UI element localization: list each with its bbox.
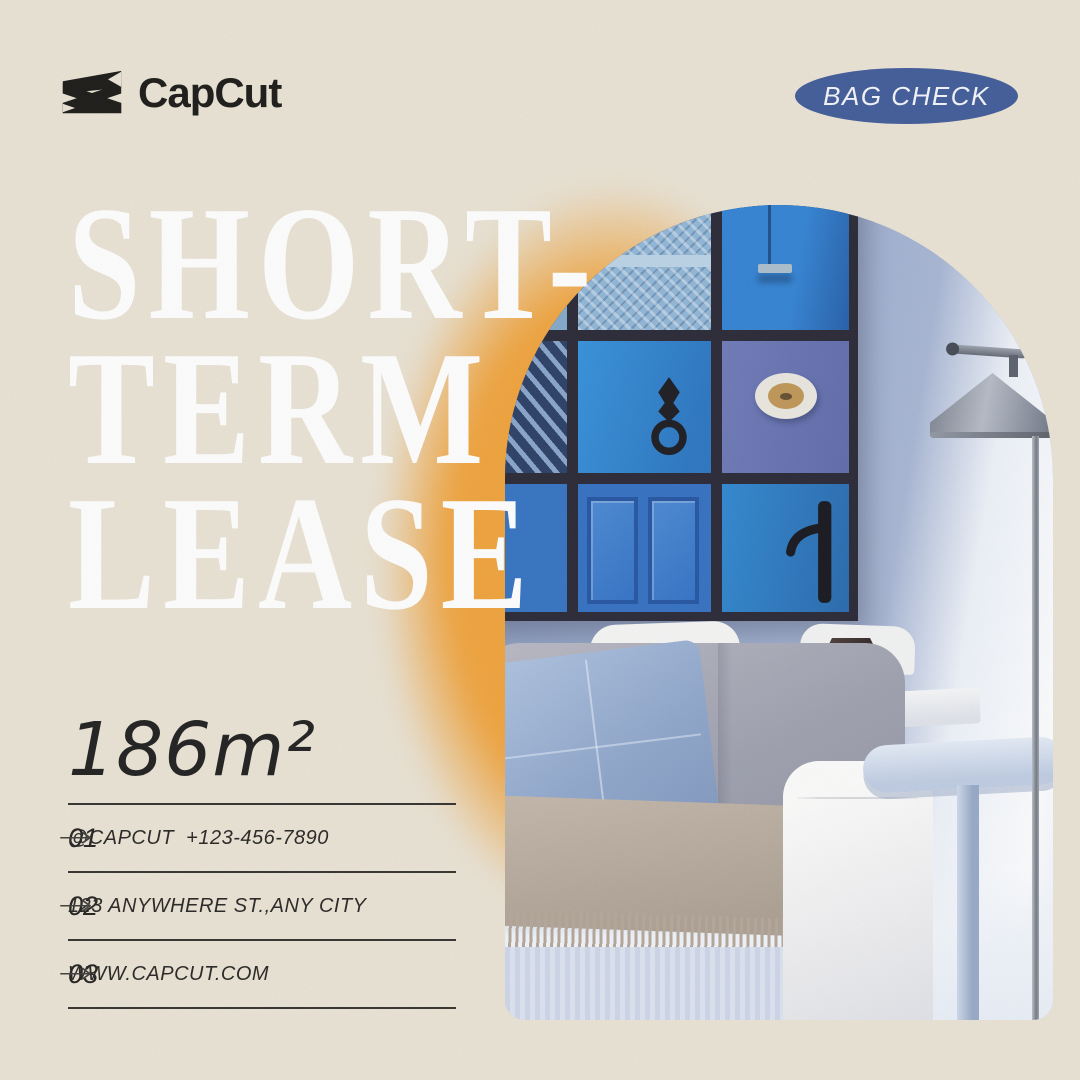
headline-line-2: TERM	[68, 337, 599, 482]
headline: SHORT- TERM LEASE	[68, 192, 599, 627]
capcut-logo-icon	[60, 68, 124, 117]
sofa-armrest	[783, 761, 933, 1020]
floor-lamp-pole	[1032, 436, 1039, 1020]
area-label: 186m²	[68, 721, 456, 779]
arrow-right-icon[interactable]: →	[58, 959, 93, 989]
floor-lamp-stem	[1009, 355, 1018, 377]
contact-text: WWW.CAPCUT.COM	[68, 963, 269, 986]
poster: CapCut BAG CHECK	[0, 0, 1080, 1080]
door-handle-icon	[780, 497, 844, 609]
brand-name: CapCut	[138, 72, 281, 114]
headline-line-1: SHORT-	[68, 192, 599, 337]
c-table-leg	[957, 785, 979, 1020]
door-photo-handle	[722, 484, 849, 612]
headline-line-3: LEASE	[68, 482, 599, 627]
door-photo-latch	[722, 205, 849, 330]
contact-row-3[interactable]: 03 WWW.CAPCUT.COM →	[68, 941, 456, 1007]
badge-label: BAG CHECK	[823, 81, 990, 112]
bag-check-badge[interactable]: BAG CHECK	[795, 68, 1018, 124]
contact-row-2[interactable]: 02 123 ANYWHERE ST.,ANY CITY →	[68, 873, 456, 939]
arrow-right-icon[interactable]: →	[58, 823, 93, 853]
contact-text: 123 ANYWHERE ST.,ANY CITY	[68, 895, 367, 918]
divider	[68, 1007, 456, 1009]
brand-logo: CapCut	[60, 68, 281, 117]
info-block: 186m² 01 @CAPCUT +123-456-7890 → 02 123 …	[68, 721, 456, 1009]
contact-text: @CAPCUT +123-456-7890	[68, 827, 329, 850]
door-knocker-icon	[647, 375, 691, 461]
door-photo-plate	[722, 341, 849, 473]
contact-row-1[interactable]: 01 @CAPCUT +123-456-7890 →	[68, 805, 456, 871]
arrow-right-icon[interactable]: →	[58, 891, 93, 921]
